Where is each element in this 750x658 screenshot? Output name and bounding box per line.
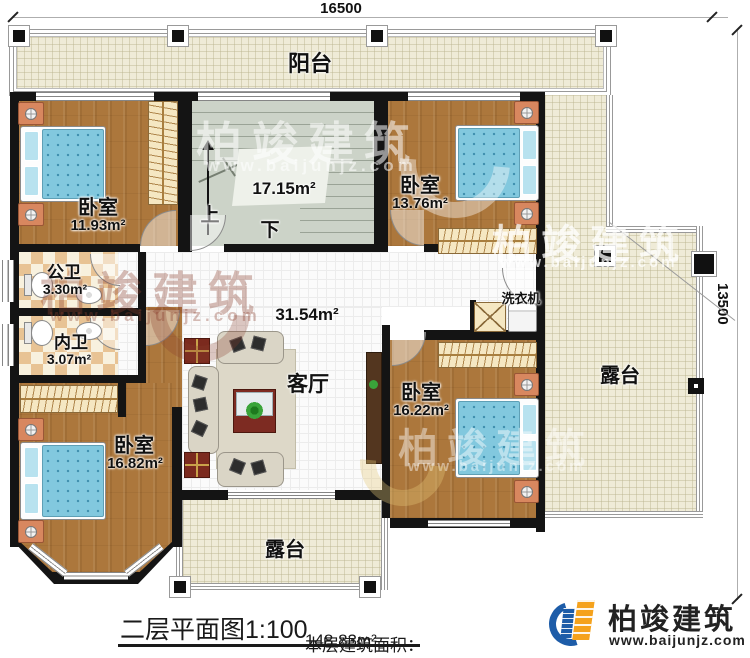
dimension-right-label: 13500 — [714, 283, 731, 325]
lamp-icon — [25, 526, 37, 538]
wall — [224, 244, 374, 252]
wall — [180, 490, 228, 500]
wall — [18, 375, 138, 383]
bed-pillow — [522, 130, 537, 160]
wall — [138, 252, 146, 383]
bed-pillow — [24, 483, 39, 514]
column-marker — [168, 26, 188, 46]
dimension-top-line — [12, 17, 728, 18]
bedroom-br-area: 16.22m² — [393, 403, 449, 419]
bed-pillow — [24, 447, 39, 478]
bedroom-br-label: 卧室 — [401, 383, 441, 404]
sofa — [217, 452, 284, 487]
bedroom-tl-label: 卧室 — [78, 198, 118, 219]
bed-mattress — [458, 401, 520, 475]
wardrobe — [438, 228, 537, 254]
laundry-cabinet — [474, 302, 506, 332]
nightstand — [514, 480, 539, 503]
bay-window-glass — [64, 572, 128, 580]
floor-area-value: 148.83m² — [305, 631, 377, 651]
bed-pillow — [24, 131, 39, 161]
column-marker — [595, 246, 615, 266]
column-marker — [360, 577, 380, 597]
bath-inner-label: 内卫 — [54, 334, 88, 352]
company-logo-icon — [548, 594, 606, 654]
terrace-railing — [176, 583, 388, 590]
plant-icon — [369, 380, 378, 389]
washing-machine-icon — [508, 303, 537, 332]
wall — [18, 244, 140, 252]
nightstand — [18, 102, 44, 125]
window — [2, 260, 14, 302]
window — [36, 92, 154, 101]
nightstand — [18, 203, 44, 226]
end-table — [184, 452, 210, 478]
bedroom-tr-label: 卧室 — [400, 176, 440, 197]
terrace-railing — [606, 95, 613, 235]
wall — [118, 383, 126, 417]
lamp-icon — [25, 424, 37, 436]
toilet-icon — [31, 320, 53, 346]
nightstand — [514, 202, 539, 225]
terrace-right-label: 露台 — [600, 366, 640, 387]
column-marker — [596, 26, 616, 46]
lamp-icon — [521, 107, 533, 119]
wall — [18, 308, 138, 316]
nightstand — [514, 101, 539, 124]
lamp-icon — [25, 209, 37, 221]
bath-public-area: 3.30m² — [43, 282, 87, 297]
wardrobe — [20, 385, 118, 413]
bedroom-tl-area: 11.93m² — [70, 218, 125, 234]
column-marker — [367, 26, 387, 46]
terrace-railing — [545, 511, 703, 518]
terrace-bottom-label: 露台 — [265, 540, 305, 561]
sofa-cushion — [193, 397, 208, 412]
living-label: 客厅 — [287, 374, 329, 396]
bed-pillow — [522, 440, 537, 471]
window — [428, 520, 510, 527]
bed-pillow — [24, 166, 39, 196]
column-marker — [9, 26, 29, 46]
balcony-label: 阳台 — [288, 52, 332, 75]
lamp-icon — [25, 108, 37, 120]
bath-public-label: 公卫 — [47, 264, 81, 282]
bedroom-bl-label: 卧室 — [114, 436, 154, 457]
wardrobe — [438, 342, 537, 368]
stair-area-label: 17.15m² — [252, 180, 315, 198]
wall — [172, 407, 182, 547]
bedroom-bl-area: 16.82m² — [107, 456, 163, 472]
wardrobe — [148, 101, 178, 205]
nightstand — [514, 373, 539, 396]
up-arrow-icon — [202, 134, 214, 150]
terrace-right-floor — [545, 95, 607, 235]
wall — [374, 92, 388, 252]
plan-title: 二层平面图1:100 — [120, 610, 308, 646]
bed-mattress — [42, 129, 104, 199]
bed-mattress — [42, 445, 104, 517]
dimension-top-label: 16500 — [320, 1, 362, 17]
hall-area-label: 31.54m² — [275, 306, 338, 324]
dimension-right-line — [737, 30, 738, 600]
plant-icon — [246, 402, 263, 419]
window — [2, 324, 14, 366]
column-marker — [688, 378, 704, 394]
laundry-label: 洗衣机 — [501, 292, 540, 306]
column-marker — [692, 252, 716, 276]
stair-down-label: 下 — [260, 221, 279, 241]
lamp-icon — [521, 208, 533, 220]
nightstand — [18, 418, 44, 441]
window — [408, 92, 520, 101]
nightstand — [18, 520, 44, 543]
bed-pillow — [522, 404, 537, 435]
bath-inner-area: 3.07m² — [47, 352, 91, 367]
column-marker — [170, 577, 190, 597]
lamp-icon — [521, 486, 533, 498]
bedroom-tr-area: 13.76m² — [392, 196, 448, 212]
window — [228, 492, 335, 499]
bed-pillow — [522, 165, 537, 195]
company-website: www.baijunjz.com — [609, 632, 746, 648]
window — [198, 92, 330, 101]
floor-plan-canvas: 16500 13500 阳台 露台 露台 — [0, 0, 750, 658]
lamp-icon — [521, 379, 533, 391]
wall — [10, 92, 19, 547]
